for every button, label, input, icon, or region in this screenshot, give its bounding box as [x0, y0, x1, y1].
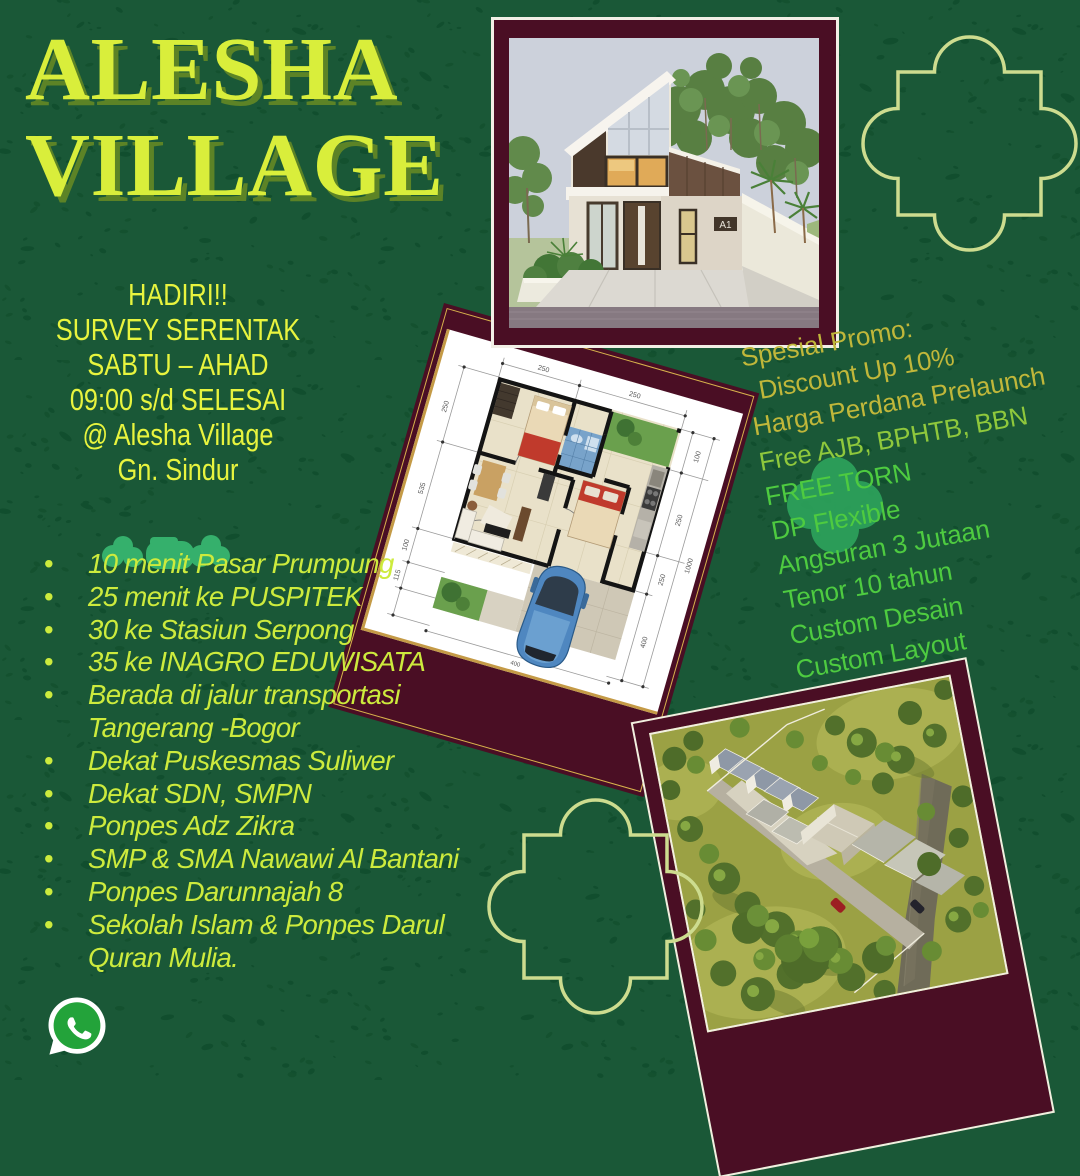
svg-text:1000: 1000	[684, 558, 695, 575]
svg-text:250: 250	[628, 391, 641, 401]
svg-text:400: 400	[640, 636, 650, 649]
svg-text:100: 100	[693, 450, 703, 463]
svg-text:250: 250	[537, 364, 550, 374]
svg-text:535: 535	[418, 482, 428, 495]
svg-text:250: 250	[675, 514, 685, 527]
svg-text:A1: A1	[719, 220, 732, 231]
svg-text:250: 250	[658, 573, 668, 586]
svg-text:250: 250	[441, 400, 451, 413]
